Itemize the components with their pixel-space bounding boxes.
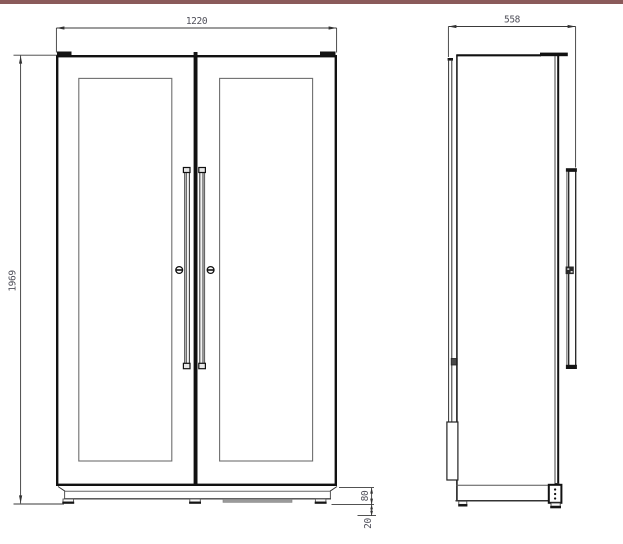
door-divider: [194, 56, 198, 485]
left-door-handle: [183, 168, 190, 369]
dimension-foot: 20: [358, 505, 377, 529]
side-door-top-cap: [540, 53, 568, 57]
hinge-bracket: [549, 485, 562, 503]
dimension-height: 1969: [8, 55, 65, 504]
side-door-face: [555, 55, 560, 485]
right-door-handle: [199, 168, 206, 369]
side-lock-bolt: [566, 267, 574, 275]
right-door-glass: [220, 78, 313, 461]
cabinet-front-view: [57, 52, 337, 504]
dim-label-depth: 558: [504, 15, 521, 26]
hinge-cover-left: [57, 52, 72, 56]
cabinet-side-view: [447, 53, 577, 509]
technical-drawing: 1220 558 1969 80: [0, 0, 623, 544]
dim-label-foot: 20: [363, 518, 374, 529]
leveling-foot: [550, 503, 561, 508]
right-door-lock: [207, 267, 214, 274]
dim-label-base: 80: [360, 490, 371, 501]
side-handle: [566, 168, 577, 369]
dimension-width: 1220: [56, 16, 336, 53]
divider-top-cap: [194, 52, 198, 57]
back-panel: [448, 58, 458, 445]
leveling-foot: [315, 499, 327, 504]
dimension-depth: 558: [448, 15, 575, 168]
left-door-lock: [176, 267, 183, 274]
dim-label-width: 1220: [186, 16, 208, 27]
plinth: [58, 487, 337, 499]
leveling-foot: [189, 499, 201, 504]
leveling-foot: [458, 501, 467, 506]
left-door-glass: [79, 78, 172, 461]
vent-grille: [223, 499, 292, 502]
side-plinth: [456, 485, 562, 501]
dim-label-height: 1969: [8, 270, 19, 292]
hinge-cover-right: [320, 52, 336, 56]
dimension-base: 80: [332, 488, 375, 505]
dimension-drawing-page: 1220 558 1969 80: [0, 0, 623, 544]
leveling-foot: [62, 499, 74, 504]
compressor-housing: [447, 422, 458, 480]
